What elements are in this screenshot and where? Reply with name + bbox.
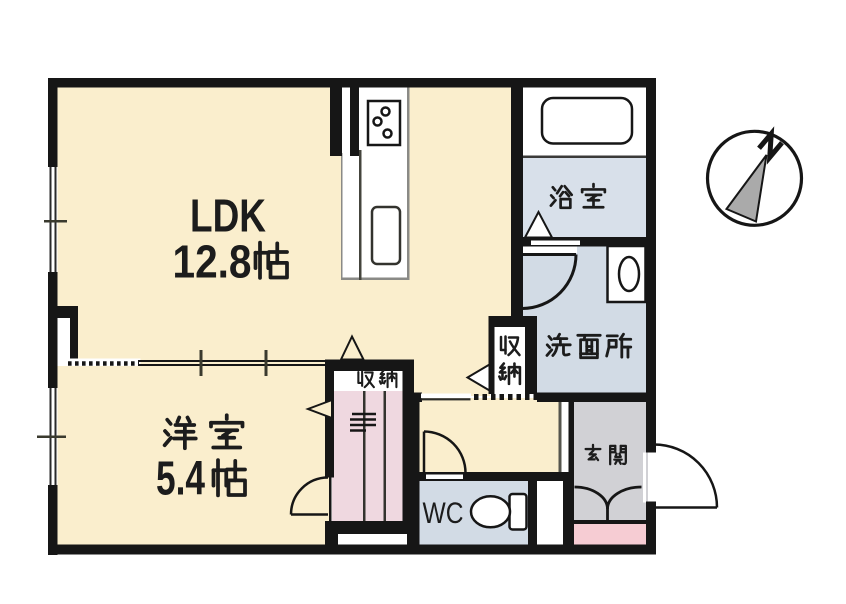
svg-text:LDK: LDK [190, 190, 266, 242]
svg-text:WC: WC [423, 497, 464, 530]
svg-text:5.4: 5.4 [156, 453, 205, 506]
svg-text:12.8: 12.8 [173, 236, 252, 288]
